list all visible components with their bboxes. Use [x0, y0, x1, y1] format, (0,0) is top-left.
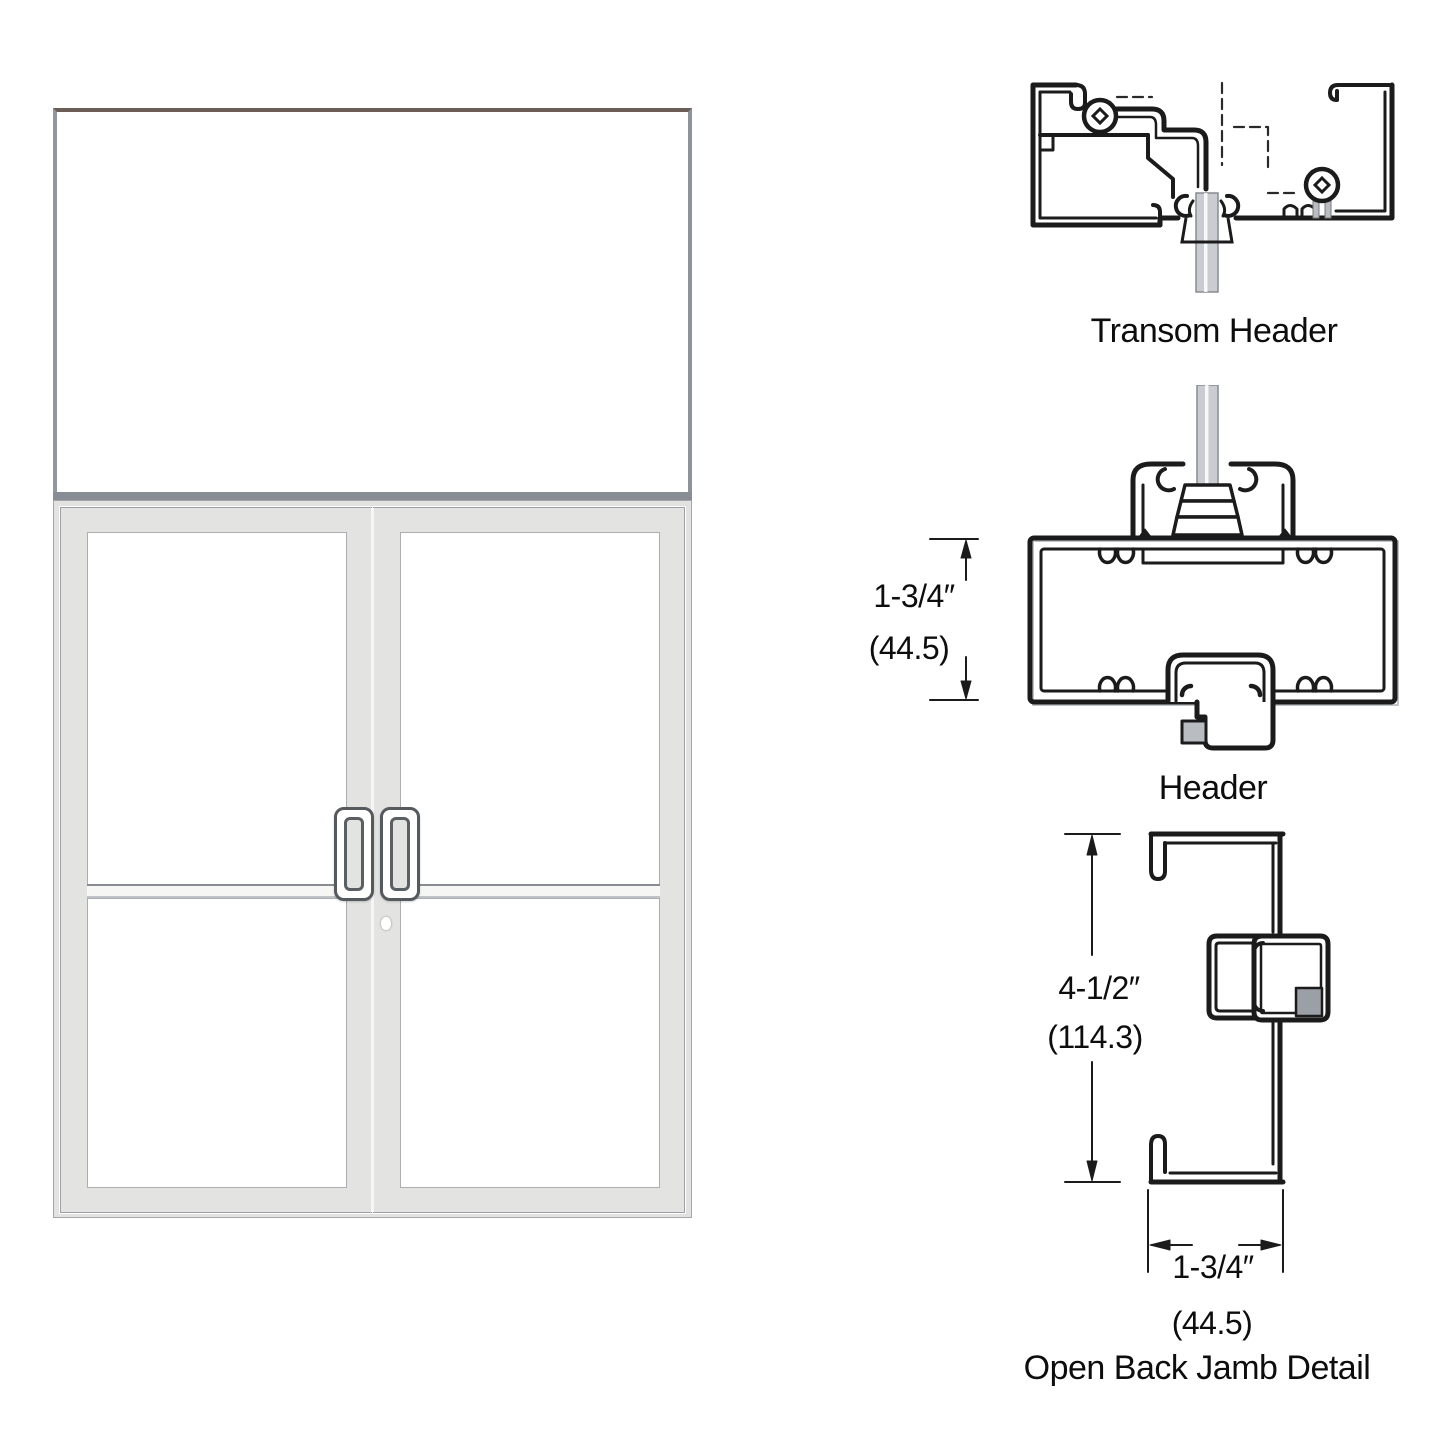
header-glass-stem — [1197, 385, 1218, 485]
transom-header-section-drawing — [1000, 75, 1430, 295]
door-leaf-right — [374, 508, 684, 1212]
open-back-jamb-label: Open Back Jamb Detail — [987, 1351, 1407, 1387]
door-leaf-left — [61, 508, 371, 1212]
transom-header-label: Transom Header — [1054, 314, 1374, 350]
header-dim-inches: 1-3/4″ — [844, 580, 984, 614]
jamb-dim-height-inches: 4-1/2″ — [1029, 972, 1169, 1006]
pull-handle-left-opening — [344, 817, 364, 891]
lock-cylinder — [381, 917, 391, 930]
transom-glass — [53, 108, 692, 492]
diagram-canvas: Transom Header — [0, 0, 1445, 1445]
door-right-mid-rail — [400, 884, 660, 898]
jamb-dim-width-mm: (44.5) — [1142, 1307, 1282, 1341]
door-left-glass-bottom — [87, 898, 347, 1188]
transom-bar — [53, 492, 692, 500]
pull-handle-right — [380, 807, 420, 901]
jamb-dim-height-mm: (114.3) — [1025, 1021, 1165, 1055]
door-right-glass-top — [400, 532, 660, 886]
pull-handle-right-opening — [390, 817, 410, 891]
door-left-mid-rail — [87, 884, 347, 898]
header-label: Header — [1053, 771, 1373, 807]
pull-handle-left — [334, 807, 374, 901]
door-left-glass-top — [87, 532, 347, 886]
door-right-glass-bottom — [400, 898, 660, 1188]
jamb-dim-width-inches: 1-3/4″ — [1143, 1251, 1283, 1285]
header-dim-mm: (44.5) — [839, 632, 979, 666]
